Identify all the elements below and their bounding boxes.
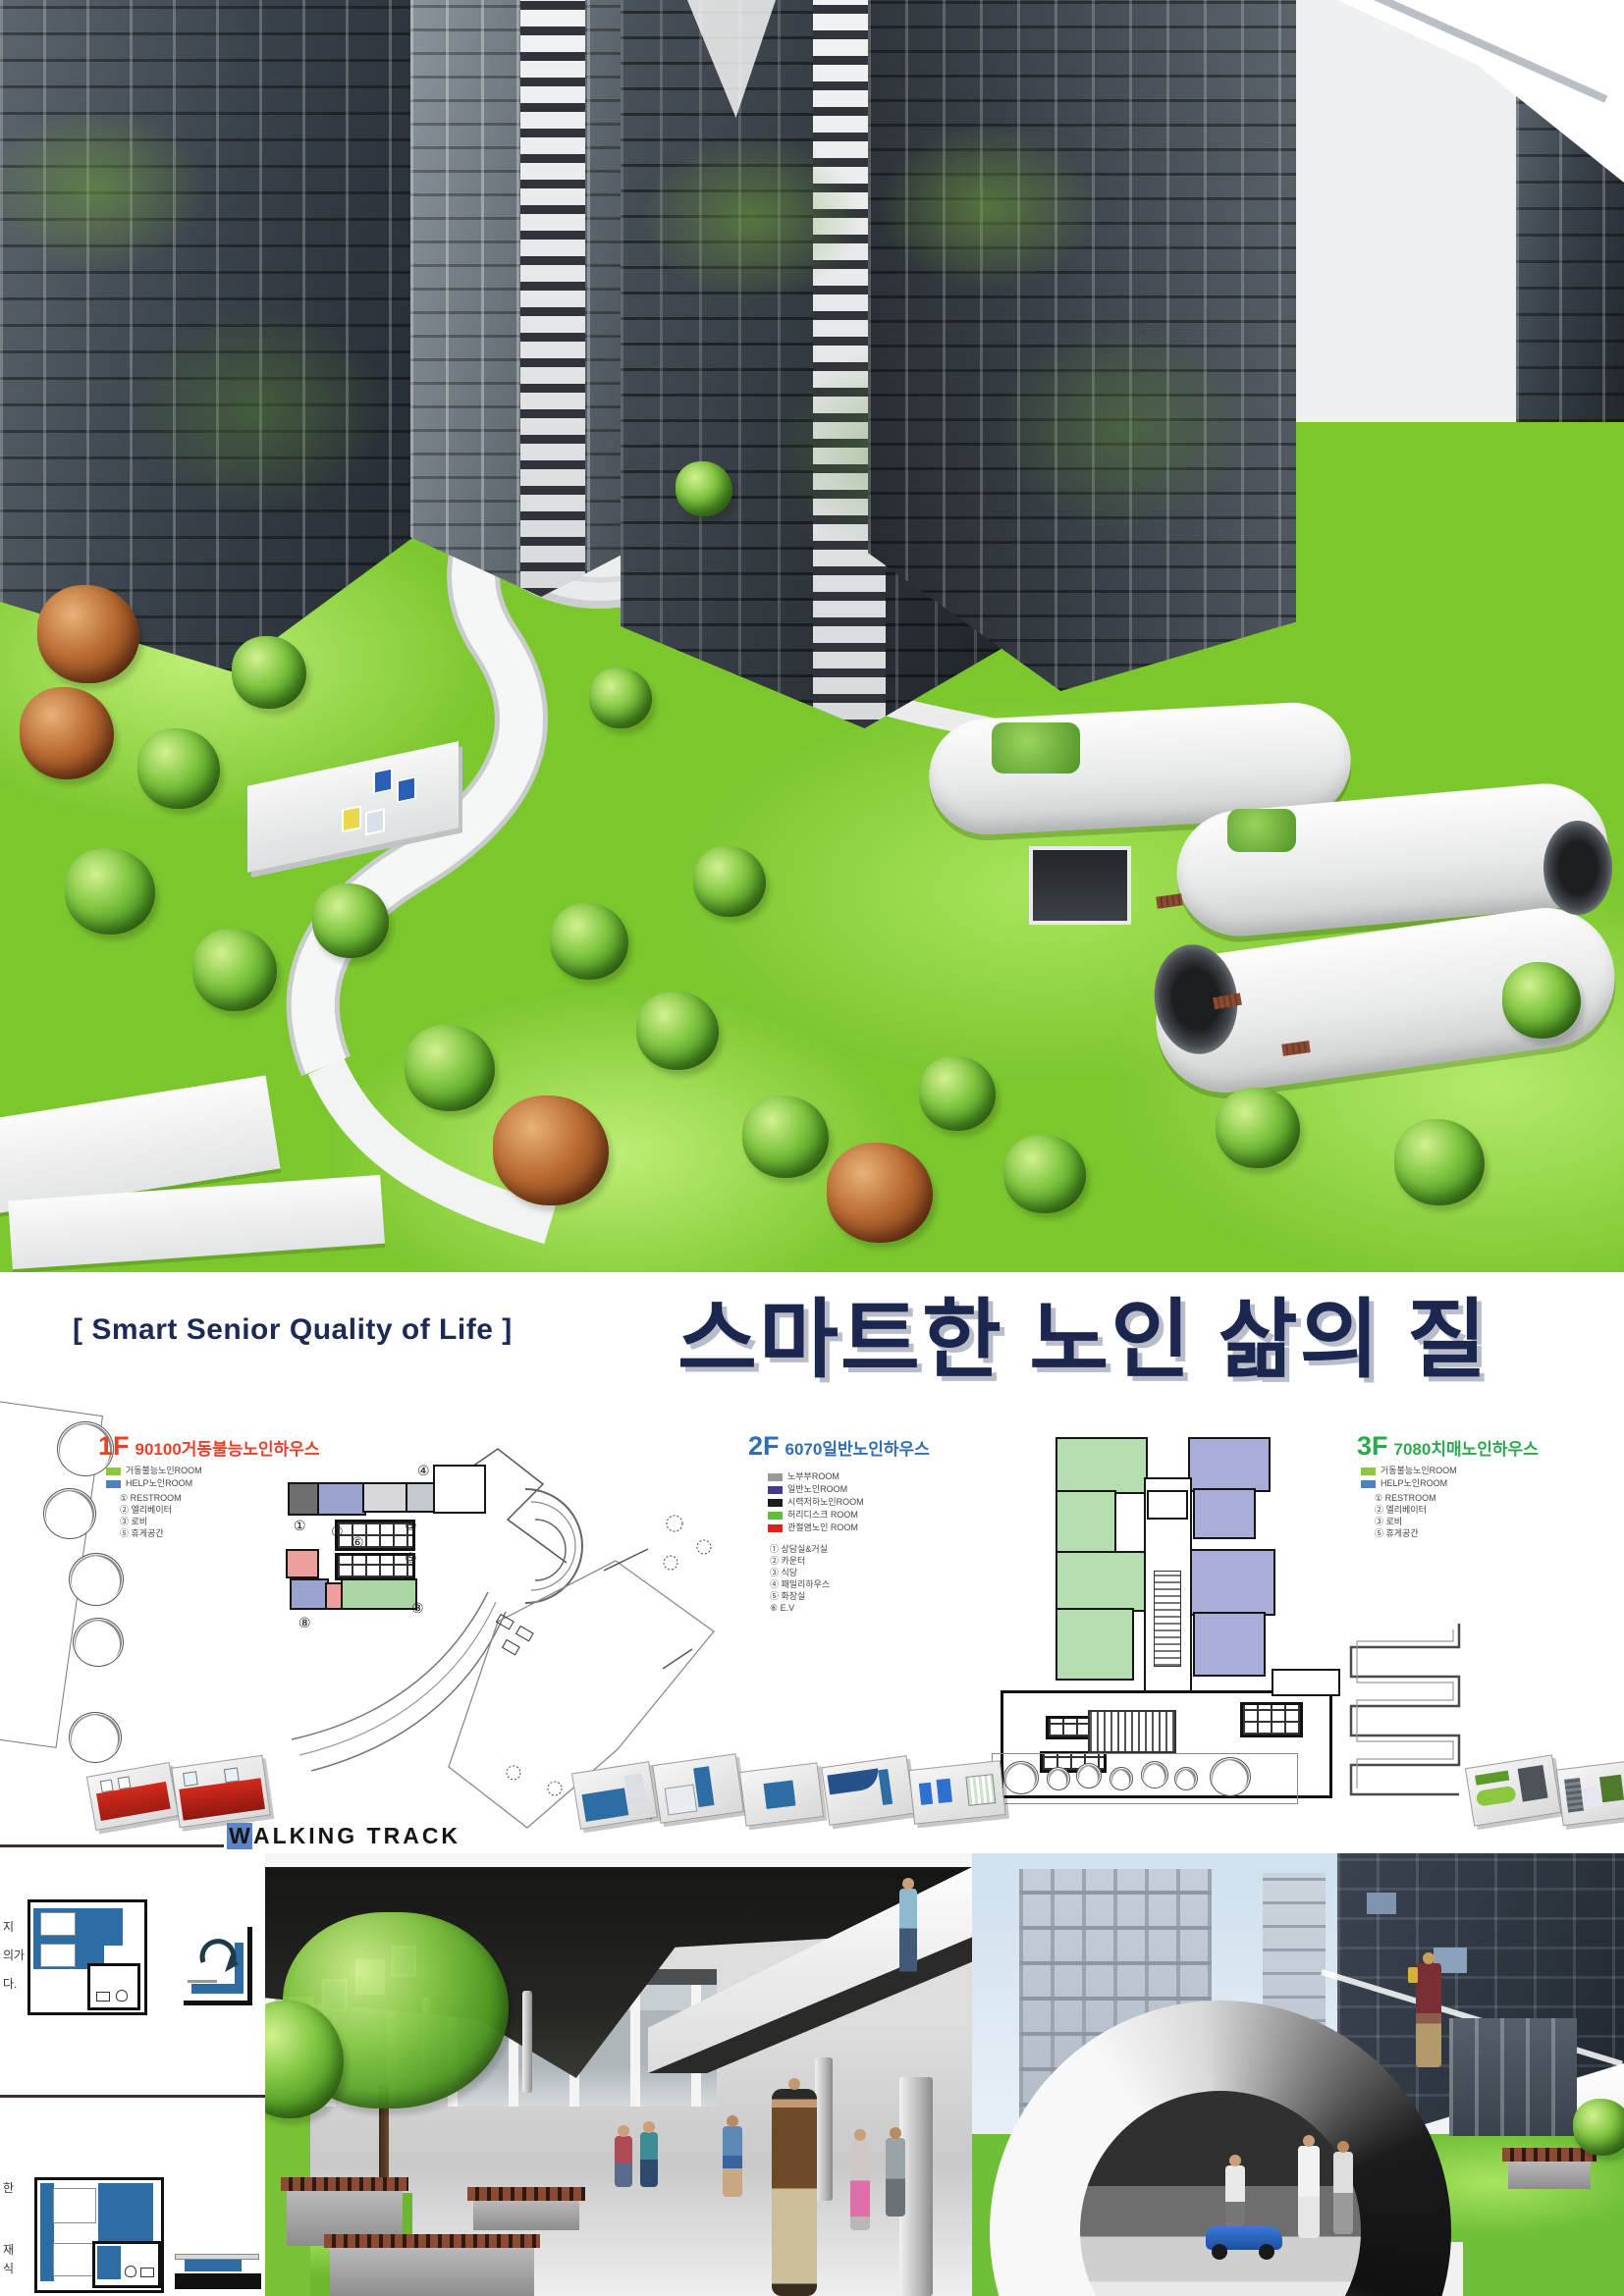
person-figure-balcony [1416, 1963, 1441, 2067]
floor-tag: 2F [748, 1431, 780, 1461]
legend-swatch [106, 1468, 121, 1475]
person-figure [899, 1889, 917, 1983]
plan-room-light [362, 1482, 409, 1513]
margin-note-line: 의가 [3, 1949, 25, 1963]
legend-row: 시력저하노인ROOM [768, 1496, 864, 1509]
legend-label: 노부부ROOM [787, 1470, 839, 1483]
margin-note-line: 재 [3, 2243, 14, 2258]
axon-wall [624, 1773, 646, 1804]
tree-icon [550, 903, 628, 980]
walking-track-initial: W [227, 1823, 252, 1849]
legend-item: ⑤ 휴게공간 [120, 1527, 182, 1539]
tree-icon [73, 1618, 124, 1667]
plan-marker: ⑥ [352, 1534, 364, 1551]
legend-label: 일반노인ROOM [787, 1483, 847, 1496]
plan-room-wing [433, 1465, 486, 1514]
unit-section-2 [175, 2248, 261, 2289]
bench-base [1508, 2162, 1591, 2189]
margin-note-line: 한 [3, 2181, 14, 2196]
floor-name: 6070일반노인하우스 [785, 1440, 930, 1459]
unit-plan-floor [40, 2183, 54, 2281]
unit-plan-bed [40, 1944, 76, 1967]
plan-marker: ⑧ [298, 1615, 311, 1631]
plan-kitchenette [1240, 1702, 1303, 1737]
tree-icon [192, 929, 277, 1011]
floor-1f-items: ① RESTROOM ② 엘리베이터 ③ 로비 ⑤ 휴게공간 [120, 1492, 182, 1539]
walking-track-rule [0, 1844, 224, 1847]
axon-screen [965, 1774, 996, 1806]
bench-slats [1502, 2148, 1597, 2162]
room-axon-unit-blue [652, 1753, 744, 1823]
room-axon-unit-green [1465, 1754, 1561, 1826]
legend-item: ① RESTROOM [1375, 1492, 1436, 1504]
axon-window [183, 1771, 198, 1787]
plan-room-purple [1193, 1488, 1256, 1539]
pavilion-roof-garden [992, 722, 1080, 774]
plan-kitchen-block [335, 1520, 415, 1551]
tree-icon [493, 1095, 609, 1205]
legend-item: ⑤ 화장실 [770, 1590, 830, 1602]
section-bed [185, 2260, 242, 2271]
legend-label: 관절염노인 ROOM [787, 1522, 858, 1534]
sink-icon [140, 2268, 154, 2277]
section-base [175, 2273, 261, 2289]
plan-room-green [1056, 1490, 1116, 1555]
tree-icon [20, 687, 114, 779]
legend-label: 거동불능노인ROOM [1380, 1465, 1457, 1477]
legend-label: 허리디스크 ROOM [787, 1509, 858, 1522]
axon-curved-wall [827, 1768, 880, 1794]
tree-icon [37, 585, 139, 683]
axon-green-sofa [1476, 1786, 1517, 1807]
artwork-tile [365, 808, 385, 835]
tree-icon [1110, 1767, 1133, 1790]
legend-swatch [768, 1524, 783, 1532]
axon-green-wall [1599, 1775, 1624, 1802]
tree-icon [43, 1488, 96, 1539]
bench-base [330, 2248, 534, 2296]
plan-marker: ① [294, 1518, 306, 1534]
tower-reflection [868, 0, 1296, 691]
tree-icon [676, 461, 732, 516]
legend-row: 거동불능노인ROOM [106, 1465, 202, 1477]
margin-note-line: 식 [3, 2262, 14, 2276]
artwork-tile [342, 805, 361, 832]
plan-kitchen-block [335, 1553, 415, 1580]
bench-base [473, 2201, 579, 2230]
unit-plan-floor [80, 1908, 123, 1946]
person-figure [850, 2140, 870, 2230]
plan-marker: ⑤ [405, 1550, 417, 1567]
legend-swatch [1361, 1468, 1376, 1475]
bench [467, 2187, 585, 2230]
panel-divider-rule [0, 2095, 265, 2098]
unit-plan-blue-2 [34, 2177, 164, 2293]
bench [324, 2234, 540, 2296]
tree-icon [1573, 2099, 1624, 2156]
pavilion-glass-box [1033, 850, 1127, 921]
unit-plan-floor [98, 2183, 153, 2248]
legend-item: ① 상담실&거실 [770, 1543, 830, 1555]
plan-room-green [1056, 1608, 1134, 1681]
axon-window [224, 1767, 240, 1783]
column [522, 1991, 532, 2093]
plan-marker: ④ [417, 1463, 430, 1479]
bench-slats [324, 2234, 540, 2248]
tube-glass-room [1449, 2018, 1577, 2136]
legend-row: 일반노인ROOM [768, 1483, 864, 1496]
legend-item: ② 카운터 [770, 1555, 830, 1567]
tree-icon [65, 848, 155, 934]
legend-item: ⑥ E.V [770, 1602, 830, 1614]
plan-1f-drawing: ① ② ⑥ ⑤ ⑤ ④ ③ ⑧ [201, 1443, 731, 1836]
plan-wing [1272, 1669, 1340, 1696]
artwork-tile [373, 767, 393, 794]
tree-icon [589, 667, 652, 728]
rendering-tube-pavilion [972, 1853, 1624, 2296]
legend-label: 시력저하노인ROOM [787, 1496, 864, 1509]
lit-window [1367, 1893, 1396, 1914]
camera-icon [1408, 1967, 1418, 1983]
rotation-arrow-icon [195, 1933, 239, 1976]
person-figure [640, 2132, 658, 2187]
axon-floor [1581, 1787, 1602, 1808]
legend-row: 관절염노인 ROOM [768, 1522, 864, 1534]
tree-icon [742, 1095, 829, 1178]
legend-row: HELP노인ROOM [1361, 1477, 1457, 1490]
plan-room-rose [286, 1549, 319, 1578]
tree-icon [405, 1025, 495, 1111]
margin-note-line: 지 [3, 1920, 25, 1935]
unit-plan-floor [97, 2246, 121, 2279]
axon-furniture [919, 1783, 933, 1805]
tower-core [520, 0, 585, 597]
floor-2f-items: ① 상담실&거실 ② 카운터 ③ 식당 ④ 패밀리하우스 ⑤ 화장실 ⑥ E.V [770, 1543, 830, 1614]
unit-plan-bathroom [92, 2241, 161, 2288]
floor-2f-header: 2F6070일반노인하우스 [748, 1431, 930, 1462]
legend-item: ① RESTROOM [120, 1492, 182, 1504]
legend-swatch [106, 1480, 121, 1488]
tree-icon [1141, 1761, 1168, 1789]
axon-wall [693, 1766, 714, 1807]
sink-icon [96, 1992, 110, 2002]
tree-icon [827, 1143, 933, 1243]
plan-room-help [317, 1482, 366, 1516]
legend-item: ④ 패밀리하우스 [770, 1578, 830, 1590]
legend-row: 노부부ROOM [768, 1470, 864, 1483]
legend-swatch [1361, 1480, 1376, 1488]
legend-swatch [768, 1486, 783, 1494]
plan-elevator [1147, 1490, 1188, 1520]
plan-stair [1154, 1571, 1181, 1667]
tree-icon [1076, 1763, 1102, 1789]
legend-row: 거동불능노인ROOM [1361, 1465, 1457, 1477]
section-floor [184, 2001, 252, 2005]
floor-name: 7080치매노인하우스 [1394, 1440, 1539, 1459]
scooter-wheel-icon [1212, 2244, 1227, 2260]
legend-swatch [768, 1499, 783, 1507]
room-axon-unit-blue [821, 1755, 914, 1826]
floor-2f-legend: 노부부ROOM 일반노인ROOM 시력저하노인ROOM 허리디스크 ROOM 관… [768, 1470, 864, 1534]
walking-track-rest: ALKING TRACK [253, 1823, 460, 1848]
tree-icon [69, 1553, 124, 1606]
tree-icon [232, 636, 306, 709]
plan-room-green [341, 1578, 417, 1610]
unit-section-1 [184, 1927, 252, 2005]
hero-rendering [0, 0, 1624, 1272]
tree-icon [1003, 1761, 1039, 1794]
legend-label: HELP노인ROOM [126, 1477, 192, 1490]
person-figure-seated [1225, 2165, 1245, 2226]
margin-note: 지 의가 다. [3, 1920, 25, 1992]
plan-room-gray [288, 1482, 321, 1516]
tree-icon [1502, 962, 1581, 1039]
walking-track-label: WALKING TRACK [227, 1823, 460, 1849]
tree-icon [1003, 1135, 1086, 1213]
unit-plan-bed [53, 2243, 96, 2276]
section-tabletop [175, 2254, 259, 2260]
person-figure [886, 2138, 905, 2216]
walking-track-plan [1343, 1622, 1465, 1806]
tree-icon [312, 883, 389, 958]
plan-marker: ② [331, 1523, 344, 1540]
plan-marker: ⑤ [405, 1518, 417, 1534]
pavilion-roof-garden [1227, 809, 1296, 852]
floor-tag: 1F [98, 1431, 130, 1461]
axon-window [100, 1779, 114, 1792]
plan-room-purple [1188, 1549, 1275, 1616]
room-axon-unit-blue [571, 1761, 658, 1830]
toilet-icon [116, 1990, 128, 2002]
person-figure [615, 2136, 632, 2187]
room-axon-unit-red [86, 1762, 179, 1831]
axon-window [118, 1776, 132, 1789]
tower-far-right [868, 0, 1296, 691]
tree-icon [137, 728, 220, 809]
room-axon-unit-blue [739, 1762, 824, 1826]
artwork-tile [397, 775, 416, 803]
column [815, 2057, 833, 2201]
tree-icon [1174, 1767, 1198, 1790]
legend-item: ③ 로비 [1375, 1516, 1436, 1527]
legend-row: 허리디스크 ROOM [768, 1509, 864, 1522]
axon-bed [665, 1785, 698, 1816]
plan-room-purple [1188, 1437, 1271, 1492]
person-figure-white-suit [1298, 2146, 1320, 2238]
legend-item: ③ 식당 [770, 1567, 830, 1578]
plan-room-green [1056, 1437, 1148, 1494]
floor-1f-legend: 거동불능노인ROOM HELP노인ROOM [106, 1465, 202, 1490]
title-english: [ Smart Senior Quality of Life ] [73, 1313, 513, 1347]
room-axon-unit-red [171, 1755, 271, 1828]
unit-plan-bed [40, 1912, 76, 1936]
tree-icon [919, 1056, 996, 1131]
tree-icon [69, 1712, 122, 1763]
section-seat [191, 1984, 239, 1994]
floor-3f-items: ① RESTROOM ② 엘리베이터 ③ 로비 ⑤ 휴게공간 [1375, 1492, 1436, 1539]
margin-note-line: 다. [3, 1977, 25, 1992]
plan-ramp [1088, 1710, 1176, 1753]
bench-slats [467, 2187, 585, 2201]
room-axon-unit-blue [908, 1760, 1005, 1825]
toilet-icon [125, 2266, 136, 2277]
pavilion-tube-opening [1543, 821, 1612, 915]
bench-slats [281, 2177, 408, 2191]
section-table [188, 1980, 217, 1983]
axon-green-wall [1475, 1771, 1509, 1786]
axon-floor-slab [581, 1788, 628, 1822]
floor-tag: 3F [1357, 1431, 1388, 1461]
rendering-walkway [265, 1853, 972, 2296]
unit-plan-bed [53, 2188, 96, 2223]
legend-item: ② 엘리베이터 [120, 1504, 182, 1516]
legend-item: ③ 로비 [120, 1516, 182, 1527]
legend-item: ② 엘리베이터 [1375, 1504, 1436, 1516]
bench [1502, 2148, 1597, 2189]
plan-room-green [1056, 1551, 1148, 1612]
axon-dark-core [1518, 1765, 1548, 1802]
legend-label: 거동불능노인ROOM [126, 1465, 202, 1477]
axon-wall [878, 1769, 893, 1805]
axon-core [764, 1781, 796, 1809]
axon-furniture [937, 1779, 952, 1803]
presentation-board: [ Smart Senior Quality of Life ] 스마트한 노인… [0, 0, 1624, 2296]
tree-icon [1210, 1757, 1251, 1796]
margin-note: 한 재 식 [3, 2181, 14, 2276]
unit-plan-bathroom [87, 1963, 140, 2010]
unit-plan-blue-1 [27, 1899, 147, 2015]
tree-icon [1216, 1088, 1300, 1168]
scooter-wheel-icon [1259, 2244, 1274, 2260]
tree-icon [1047, 1767, 1070, 1790]
floor-3f-legend: 거동불능노인ROOM HELP노인ROOM [1361, 1465, 1457, 1490]
person-figure [723, 2126, 742, 2197]
legend-label: HELP노인ROOM [1380, 1477, 1447, 1490]
legend-item: ⑤ 휴게공간 [1375, 1527, 1436, 1539]
legend-swatch [768, 1512, 783, 1520]
legend-swatch [768, 1473, 783, 1481]
axon-dark-wall [1564, 1778, 1584, 1813]
plan-room-help [290, 1578, 329, 1610]
tree-icon [1394, 1119, 1485, 1205]
plan-room-purple [1193, 1612, 1266, 1677]
legend-row: HELP노인ROOM [106, 1477, 202, 1490]
section-wall [247, 1927, 252, 2005]
title-korean: 스마트한 노인 삶의 질 [677, 1270, 1624, 1395]
room-axon-unit-green [1556, 1761, 1624, 1827]
person-figure-foreground [772, 2089, 817, 2296]
tree-icon [693, 846, 766, 917]
tree-icon [636, 991, 719, 1070]
person-figure [1333, 2152, 1353, 2234]
plan-marker: ③ [411, 1600, 424, 1617]
floor-3f-header: 3F7080치매노인하우스 [1357, 1431, 1539, 1462]
